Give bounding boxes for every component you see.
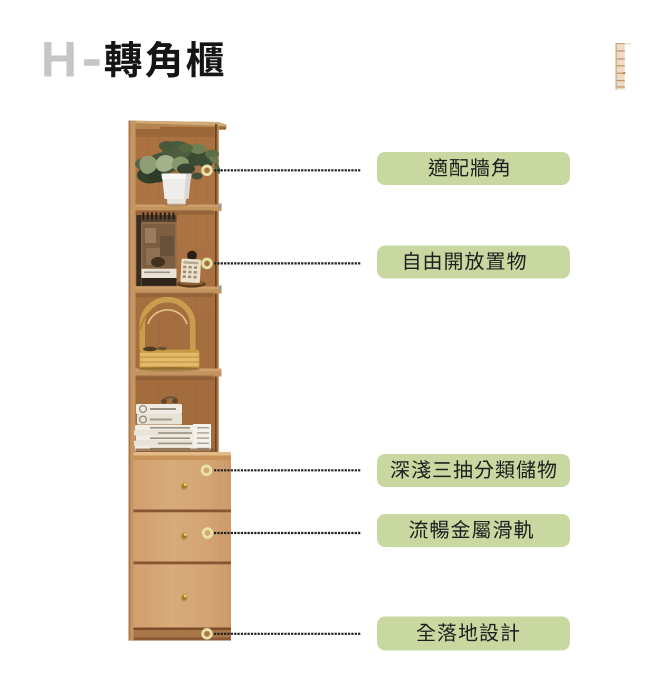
svg-text:H: H — [41, 32, 77, 88]
